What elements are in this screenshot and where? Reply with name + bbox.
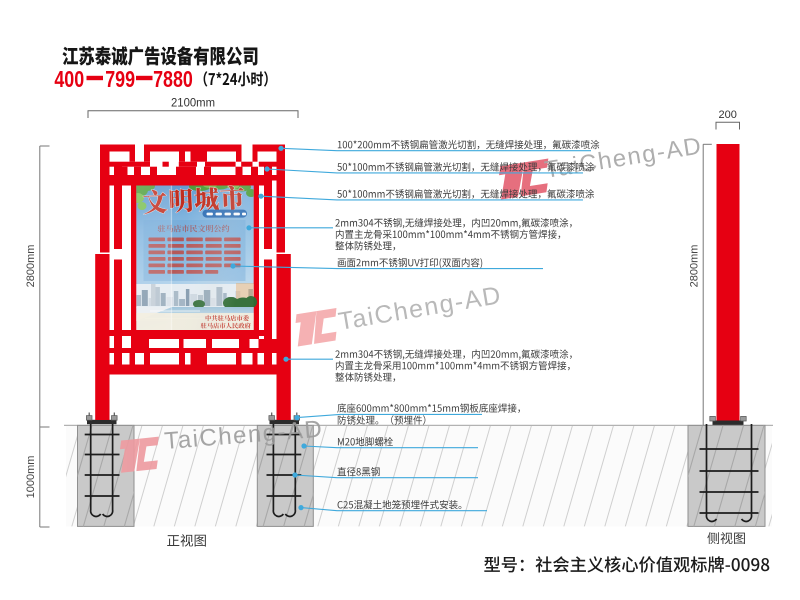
svg-text:TaiCheng-AD: TaiCheng-AD (336, 281, 504, 336)
svg-text:400: 400 (54, 67, 84, 93)
svg-text:2800mm: 2800mm (689, 245, 701, 288)
svg-text:200: 200 (719, 109, 737, 121)
svg-text:TaiCheng-AD: TaiCheng-AD (543, 132, 704, 184)
svg-text:1000mm: 1000mm (25, 456, 37, 499)
svg-text:799: 799 (105, 67, 135, 93)
svg-text:7880: 7880 (153, 67, 193, 93)
svg-text:2100mm: 2100mm (171, 96, 215, 110)
svg-text:2800mm: 2800mm (25, 245, 37, 288)
